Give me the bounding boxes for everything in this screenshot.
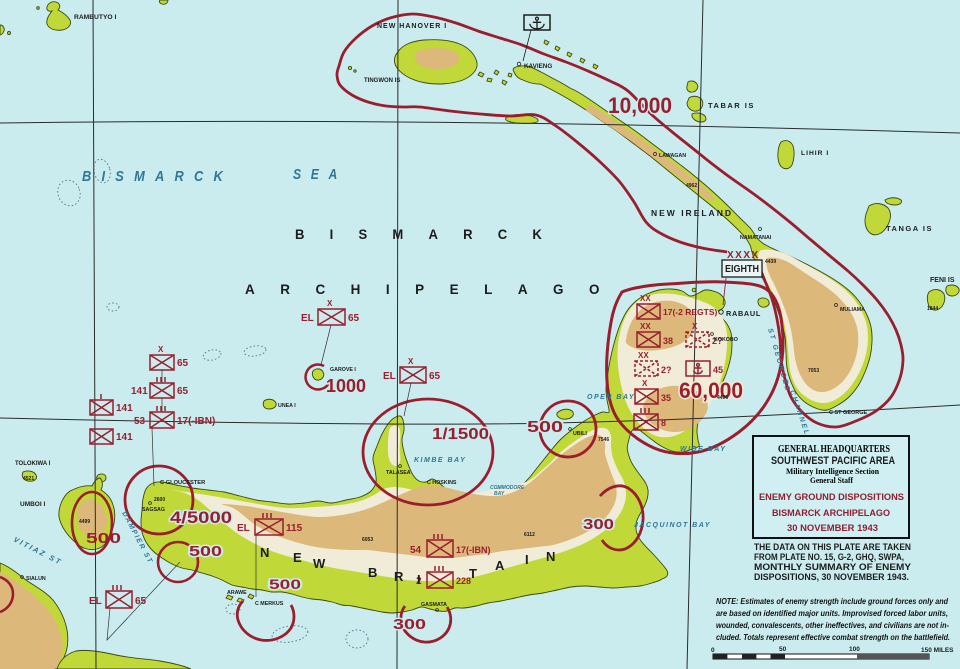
svg-text:65: 65	[177, 358, 189, 369]
svg-text:65: 65	[177, 386, 189, 397]
svg-text:6112: 6112	[524, 532, 535, 538]
svg-text:EL: EL	[301, 313, 314, 324]
svg-text:35: 35	[661, 393, 671, 403]
svg-text:cluded. Totals represent effe: cluded. Totals represent effective comba…	[716, 632, 950, 642]
svg-text:XX: XX	[640, 322, 651, 331]
svg-text:General Staff: General Staff	[810, 475, 853, 485]
svg-text:4/5000: 4/5000	[170, 508, 232, 527]
svg-text:SAGSAG: SAGSAG	[142, 507, 165, 513]
svg-text:EIGHTH: EIGHTH	[725, 264, 759, 275]
svg-text:E: E	[293, 550, 302, 565]
svg-text:4521: 4521	[23, 476, 34, 482]
svg-text:65: 65	[348, 313, 360, 324]
svg-text:500: 500	[189, 543, 222, 560]
svg-text:SIALUN: SIALUN	[26, 576, 46, 582]
svg-text:RABAUL: RABAUL	[726, 309, 761, 318]
svg-text:C ST GEORGE: C ST GEORGE	[829, 410, 868, 416]
svg-text:38: 38	[663, 336, 673, 346]
svg-text:THE DATA ON THIS PLATE ARE TAK: THE DATA ON THIS PLATE ARE TAKEN	[754, 542, 911, 552]
svg-text:300: 300	[583, 516, 614, 533]
svg-text:WIDE BAY: WIDE BAY	[680, 446, 726, 453]
svg-text:B: B	[368, 565, 377, 580]
svg-text:TALASEA: TALASEA	[386, 470, 411, 476]
svg-text:EL: EL	[89, 596, 102, 607]
svg-text:54: 54	[410, 545, 422, 556]
svg-text:TABAR IS: TABAR IS	[708, 101, 755, 110]
svg-text:ENEMY GROUND DISPOSITIONS: ENEMY GROUND DISPOSITIONS	[759, 492, 904, 503]
svg-text:XX: XX	[638, 351, 649, 360]
svg-text:UMBOI I: UMBOI I	[20, 501, 45, 508]
svg-text:MONTHLY SUMMARY OF ENEMY: MONTHLY SUMMARY OF ENEMY	[754, 562, 911, 572]
svg-text:141: 141	[116, 403, 133, 414]
svg-text:KOKOBO: KOKOBO	[714, 337, 738, 343]
svg-text:W: W	[313, 556, 326, 571]
svg-text:4496: 4496	[717, 395, 728, 401]
svg-text:0: 0	[711, 647, 715, 654]
svg-text:500: 500	[527, 419, 563, 436]
svg-text:65: 65	[429, 371, 441, 382]
svg-text:C HOSKINS: C HOSKINS	[427, 480, 457, 486]
svg-text:ARCHIPELAGO: ARCHIPELAGO	[245, 281, 625, 297]
svg-text:2600: 2600	[154, 497, 165, 503]
svg-text:BISMARCK ARCHIPELAGO: BISMARCK ARCHIPELAGO	[772, 508, 890, 519]
svg-text:GAROVE I: GAROVE I	[330, 367, 356, 373]
svg-text:JACQUINOT BAY: JACQUINOT BAY	[634, 522, 711, 529]
svg-text:4439: 4439	[765, 259, 776, 265]
svg-text:N: N	[260, 545, 269, 560]
svg-text:65: 65	[135, 596, 147, 607]
svg-text:BAY: BAY	[494, 491, 505, 497]
svg-text:17(-IBN): 17(-IBN)	[456, 545, 491, 555]
svg-text:UNEA I: UNEA I	[278, 403, 296, 409]
svg-text:115: 115	[286, 523, 303, 534]
svg-text:7053: 7053	[808, 368, 819, 374]
svg-text:4962: 4962	[686, 183, 697, 189]
svg-text:1844: 1844	[927, 306, 938, 312]
svg-text:UBILI: UBILI	[573, 431, 587, 437]
svg-text:NOTE: Estimates of enemy stre: NOTE: Estimates of enemy strength includ…	[716, 596, 949, 606]
svg-text:XX: XX	[640, 294, 651, 303]
svg-text:ARAWE: ARAWE	[227, 590, 247, 596]
svg-text:1000: 1000	[326, 376, 366, 396]
svg-text:NEW IRELAND: NEW IRELAND	[651, 208, 733, 218]
svg-text:GASMATA: GASMATA	[421, 602, 447, 608]
svg-text:EL: EL	[237, 523, 250, 534]
svg-text:LAWAGAN: LAWAGAN	[659, 153, 686, 159]
svg-text:TOLOKIWA I: TOLOKIWA I	[15, 461, 51, 467]
svg-text:FROM PLATE NO. 15, G-2, GHQ, S: FROM PLATE NO. 15, G-2, GHQ, SWPA,	[754, 552, 904, 562]
svg-text:2?: 2?	[661, 365, 672, 375]
svg-text:RAMBUTYO I: RAMBUTYO I	[74, 14, 116, 21]
svg-text:NAMATANAI: NAMATANAI	[740, 235, 772, 241]
svg-text:X: X	[642, 379, 648, 388]
svg-text:X: X	[327, 299, 333, 308]
svg-text:300: 300	[393, 616, 426, 633]
svg-text:TINGWON IS: TINGWON IS	[364, 78, 400, 84]
svg-text:N: N	[546, 549, 555, 564]
svg-text:OPEN BAY: OPEN BAY	[587, 394, 635, 401]
svg-text:45: 45	[713, 365, 723, 375]
svg-text:BISMARCK: BISMARCK	[295, 226, 567, 242]
svg-text:100: 100	[849, 646, 860, 653]
svg-text:4499: 4499	[79, 519, 90, 525]
svg-text:FENI IS: FENI IS	[930, 277, 955, 284]
svg-text:wounded, convalescents, other: wounded, convalescents, other ineffectiv…	[716, 620, 949, 630]
svg-text:8: 8	[661, 418, 666, 428]
svg-text:X: X	[692, 322, 698, 331]
svg-text:EL: EL	[383, 371, 396, 382]
svg-text:C MERKUS: C MERKUS	[255, 601, 284, 607]
svg-text:60,000: 60,000	[679, 378, 743, 403]
svg-text:17(-2 REGTS): 17(-2 REGTS)	[663, 307, 717, 317]
svg-text:I: I	[417, 572, 421, 587]
svg-text:7546: 7546	[598, 437, 609, 443]
svg-text:NEW HANOVER I: NEW HANOVER I	[377, 23, 447, 30]
svg-text:TANGA IS: TANGA IS	[886, 224, 933, 233]
svg-text:10,000: 10,000	[608, 93, 672, 118]
svg-text:X: X	[158, 345, 164, 354]
svg-text:30 NOVEMBER 1943: 30 NOVEMBER 1943	[787, 523, 878, 534]
svg-text:6053: 6053	[362, 537, 373, 543]
svg-text:T: T	[469, 566, 477, 581]
svg-text:150 MILES: 150 MILES	[921, 647, 954, 654]
svg-text:I: I	[525, 552, 529, 567]
svg-text:17(-IBN): 17(-IBN)	[177, 416, 215, 427]
svg-text:SEA: SEA	[293, 166, 347, 183]
svg-text:141: 141	[131, 386, 148, 397]
svg-text:KIMBE BAY: KIMBE BAY	[414, 457, 466, 464]
svg-text:1/1500: 1/1500	[432, 426, 489, 443]
svg-text:MULIAMA: MULIAMA	[840, 307, 865, 313]
svg-text:X: X	[408, 357, 414, 366]
svg-text:500: 500	[86, 530, 121, 547]
svg-text:are based on identified major: are based on identified major units. Imp…	[716, 608, 948, 618]
svg-text:141: 141	[116, 432, 133, 443]
svg-text:R: R	[394, 569, 404, 584]
svg-text:KAVIENG: KAVIENG	[524, 63, 552, 70]
svg-text:LIHIR I: LIHIR I	[801, 150, 829, 157]
svg-text:53: 53	[134, 416, 146, 427]
svg-text:500: 500	[269, 576, 301, 592]
svg-text:A: A	[495, 558, 505, 573]
svg-text:GENERAL HEADQUARTERS: GENERAL HEADQUARTERS	[778, 444, 890, 455]
svg-text:50: 50	[779, 646, 787, 653]
svg-text:BISMARCK: BISMARCK	[82, 168, 233, 185]
svg-text:DISPOSITIONS, 30 NOVEMBER 1943: DISPOSITIONS, 30 NOVEMBER 1943.	[754, 572, 909, 582]
svg-text:C GLOUCESTER: C GLOUCESTER	[160, 480, 205, 486]
